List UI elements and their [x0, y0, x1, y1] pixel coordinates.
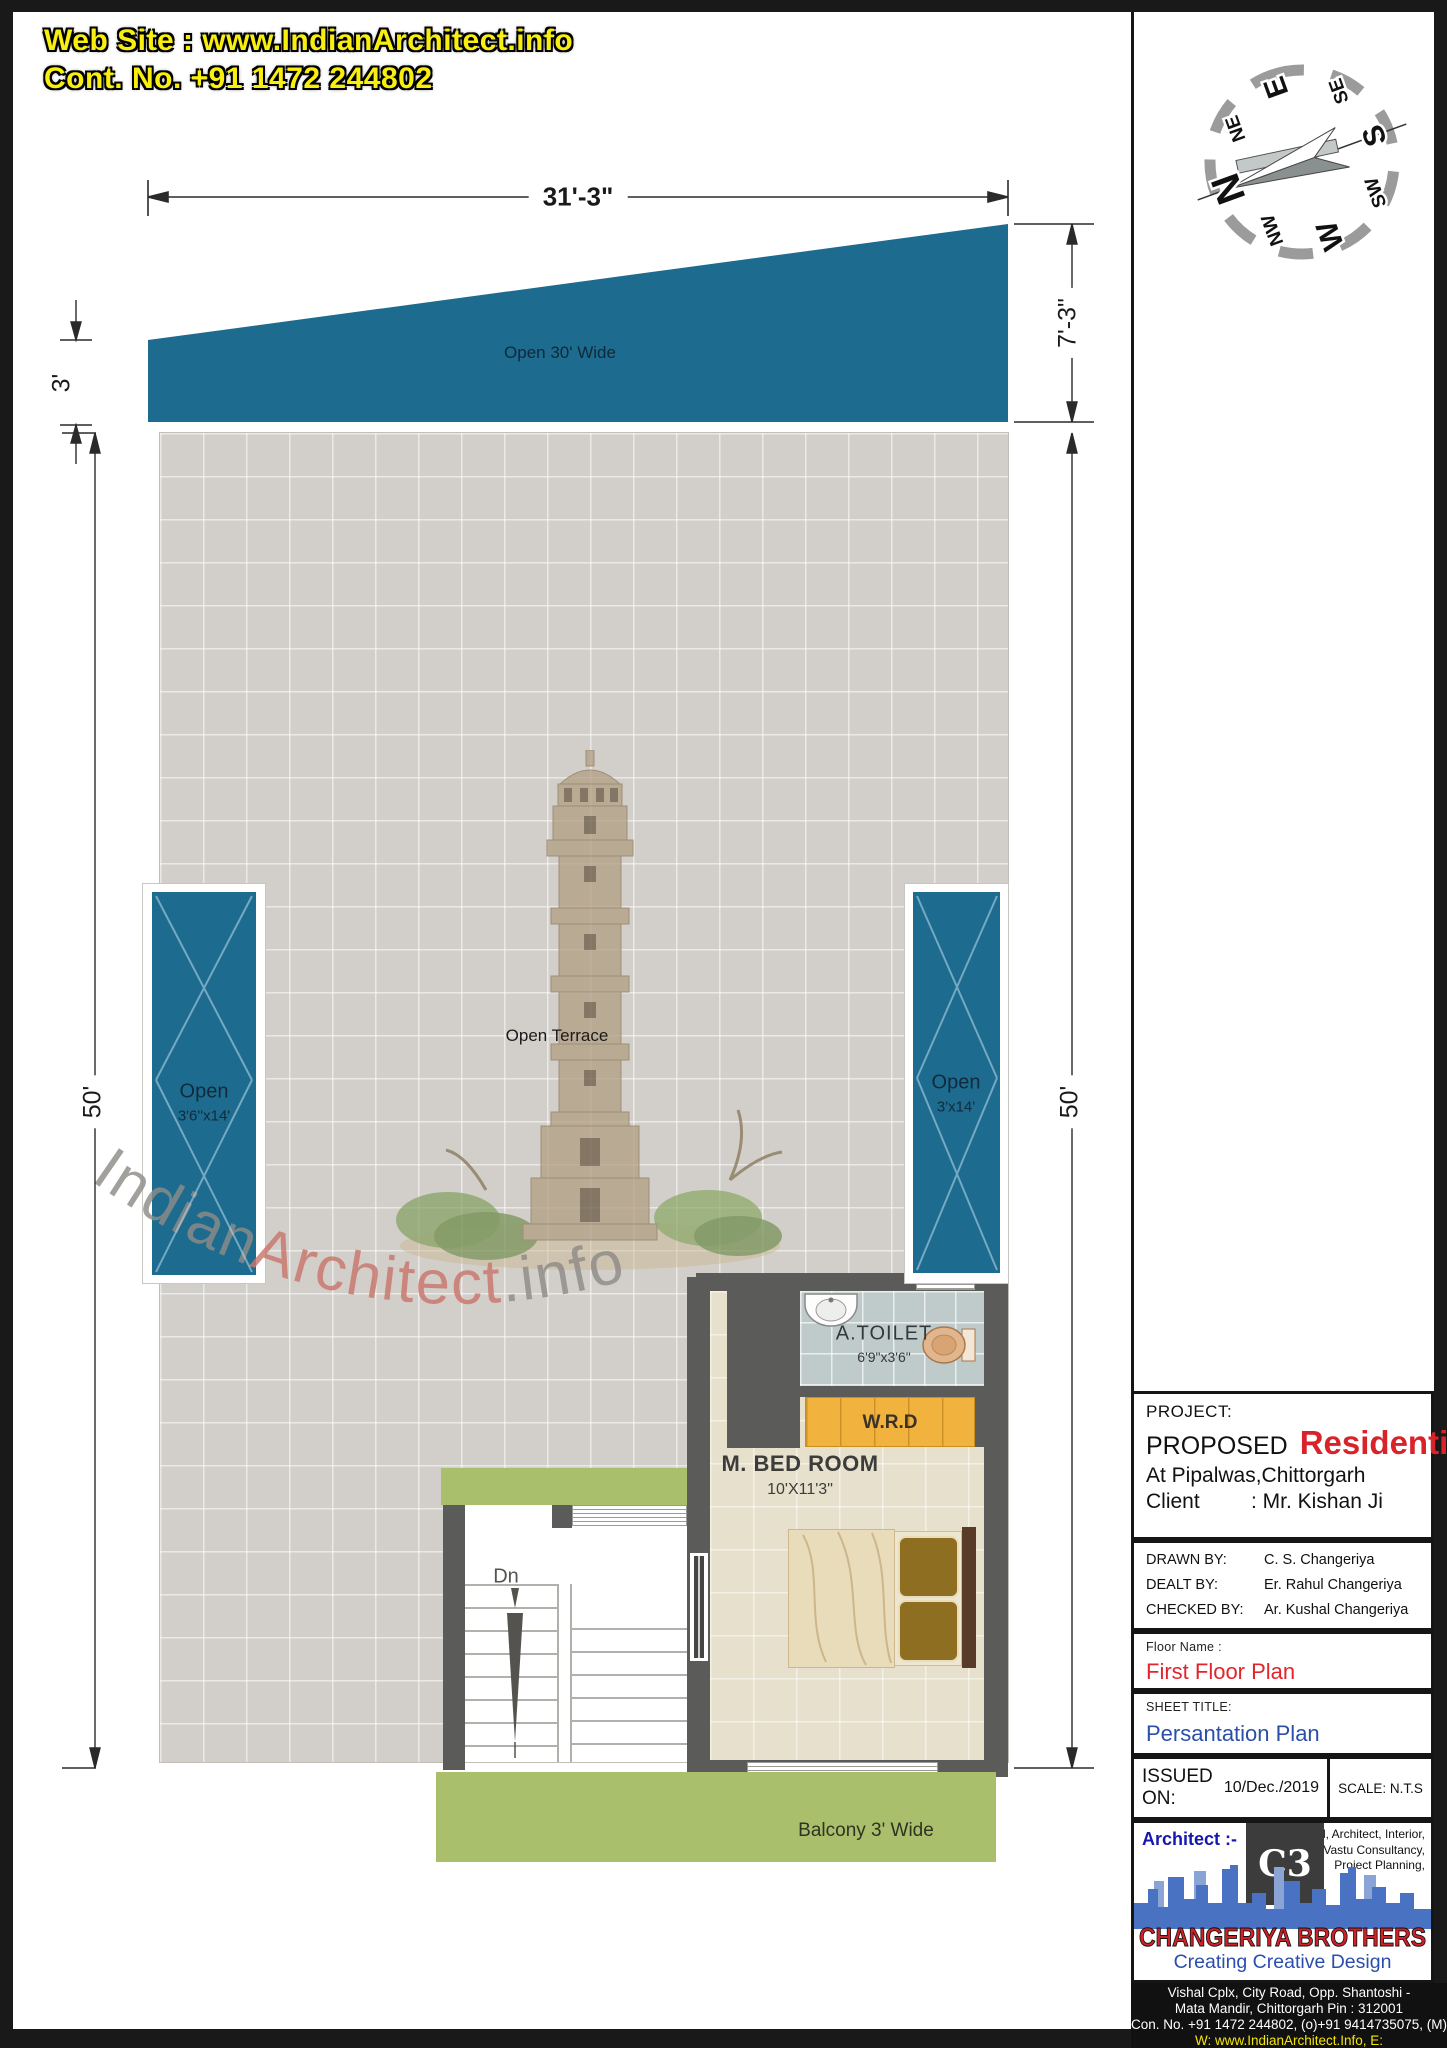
project-label: PROJECT:: [1146, 1402, 1419, 1422]
wardrobe-end-wall: [975, 1397, 984, 1447]
dim-right-small: 7'-3": [1053, 288, 1084, 358]
project-location: At Pipalwas,Chittorgarh: [1146, 1464, 1419, 1488]
website-text: Web Site : www.IndianArchitect.info: [44, 24, 573, 58]
floor-name-value: First Floor Plan: [1146, 1659, 1419, 1685]
watermark-part1: Indian: [82, 1135, 270, 1279]
toilet-label: A.TOILET: [836, 1323, 933, 1346]
stair-landing-divider: [557, 1584, 572, 1762]
open-left-label: Open: [180, 1081, 229, 1104]
watermark-part3: .info: [498, 1226, 632, 1316]
address-line-2: Mata Mandir, Chittorgarh Pin : 312001: [1131, 2001, 1447, 2017]
drawn-by-label: DRAWN BY:: [1146, 1552, 1264, 1568]
company-tagline: Creating Creative Design: [1134, 1951, 1431, 1974]
checked-by-value: Ar. Kushal Changeriya: [1264, 1602, 1408, 1618]
contact-line: Con. No. +91 1472 244802, (o)+91 9414735…: [1131, 2017, 1447, 2033]
bedroom-size-label: 10'X11'3": [767, 1481, 833, 1499]
stair-flight-left: [465, 1584, 557, 1762]
floor-name-label: Floor Name :: [1146, 1640, 1419, 1654]
open-left-size: 3'6''x14': [178, 1108, 230, 1125]
dealt-by-label: DEALT BY:: [1146, 1577, 1264, 1593]
dim-left-small: 3': [47, 364, 78, 403]
client-label: Client: [1146, 1490, 1251, 1514]
client-value: : Mr. Kishan Ji: [1251, 1490, 1383, 1513]
bed-headboard: [962, 1527, 976, 1668]
footer-address-block: Vishal Cplx, City Road, Opp. Shantoshi -…: [1131, 1983, 1447, 2048]
bed-sheet: [788, 1529, 895, 1668]
dim-right-height: 50': [1055, 1076, 1086, 1129]
compass-icon: N NE E SE S SW W NW: [1185, 45, 1420, 280]
bedroom-right-wall: [984, 1277, 1008, 1777]
dim-left-height: 50': [78, 1076, 109, 1129]
issued-on-label: ISSUED ON:: [1142, 1766, 1218, 1810]
compass-nw: NW: [1258, 211, 1289, 248]
drawn-by-value: C. S. Changeriya: [1264, 1552, 1374, 1568]
bed-pillow-1: [898, 1536, 959, 1598]
proposed-label: PROPOSED: [1146, 1432, 1288, 1461]
web-line: W: www.IndianArchitect.Info, E: info@Ind…: [1131, 2033, 1447, 2048]
architect-label: Architect :-: [1142, 1829, 1237, 1850]
svg-text:IndianArchitect.info: IndianArchitect.info: [82, 1135, 632, 1318]
stairs-dn-label: Dn: [493, 1566, 519, 1589]
scale-value: SCALE: N.T.S: [1330, 1759, 1431, 1817]
stair-top-stub-wall: [552, 1505, 572, 1528]
sheet-title-label: SHEET TITLE:: [1146, 1700, 1419, 1714]
open-top-strip: [148, 224, 1008, 422]
open-right-size: 3'x14': [937, 1099, 975, 1116]
dim-top-width: 31'-3": [529, 181, 628, 214]
terrace-label: Open Terrace: [506, 1026, 609, 1046]
project-box: PROJECT: PROPOSED Residential At Pipalwa…: [1131, 1391, 1434, 1540]
watermark: IndianArchitect.info: [55, 1120, 895, 1410]
credits-box: DRAWN BY:C. S. Changeriya DEALT BY:Er. R…: [1131, 1540, 1434, 1631]
dealt-by-value: Er. Rahul Changeriya: [1264, 1577, 1402, 1593]
watermark-part2: Architect: [244, 1214, 504, 1318]
sheet-title-box: SHEET TITLE: Persantation Plan: [1131, 1691, 1434, 1756]
wardrobe-label: W.R.D: [863, 1412, 918, 1434]
project-type: Residential: [1300, 1424, 1447, 1462]
stair-flight-right: [572, 1628, 687, 1762]
balcony-label: Balcony 3' Wide: [798, 1820, 934, 1842]
planter-strip: [441, 1468, 697, 1505]
company-name: CHANGERIYA BROTHERS: [1134, 1922, 1431, 1952]
floor-name-box: Floor Name : First Floor Plan: [1131, 1631, 1434, 1691]
border-top: [0, 0, 1447, 12]
issued-box: ISSUED ON: 10/Dec./2019 SCALE: N.T.S: [1131, 1756, 1434, 1820]
address-line-1: Vishal Cplx, City Road, Opp. Shantoshi -: [1131, 1985, 1447, 2001]
issued-on-value: 10/Dec./2019: [1224, 1779, 1319, 1797]
open-top-label: Open 30' Wide: [504, 343, 616, 363]
border-left: [0, 0, 13, 2048]
sheet-title-value: Persantation Plan: [1146, 1721, 1419, 1747]
open-right-label: Open: [932, 1072, 981, 1095]
balcony-floor: [436, 1772, 996, 1862]
bed-pillow-2: [898, 1600, 959, 1662]
compass-s: S: [1356, 120, 1394, 150]
checked-by-label: CHECKED BY:: [1146, 1602, 1264, 1618]
architect-box: Architect :- Civil, Architect, Interior,…: [1131, 1820, 1434, 1983]
border-right: [1434, 0, 1447, 2048]
toilet-size-label: 6'9"x3'6": [857, 1349, 910, 1365]
drawing-sheet: Web Site : www.IndianArchitect.info Cont…: [0, 0, 1447, 2048]
stair-left-wall: [443, 1505, 465, 1770]
contact-text: Cont. No. +91 1472 244802: [44, 62, 433, 96]
logo-skyline: [1134, 1859, 1431, 1929]
stair-window: [572, 1505, 687, 1526]
bedroom-label: M. BED ROOM: [721, 1451, 878, 1477]
